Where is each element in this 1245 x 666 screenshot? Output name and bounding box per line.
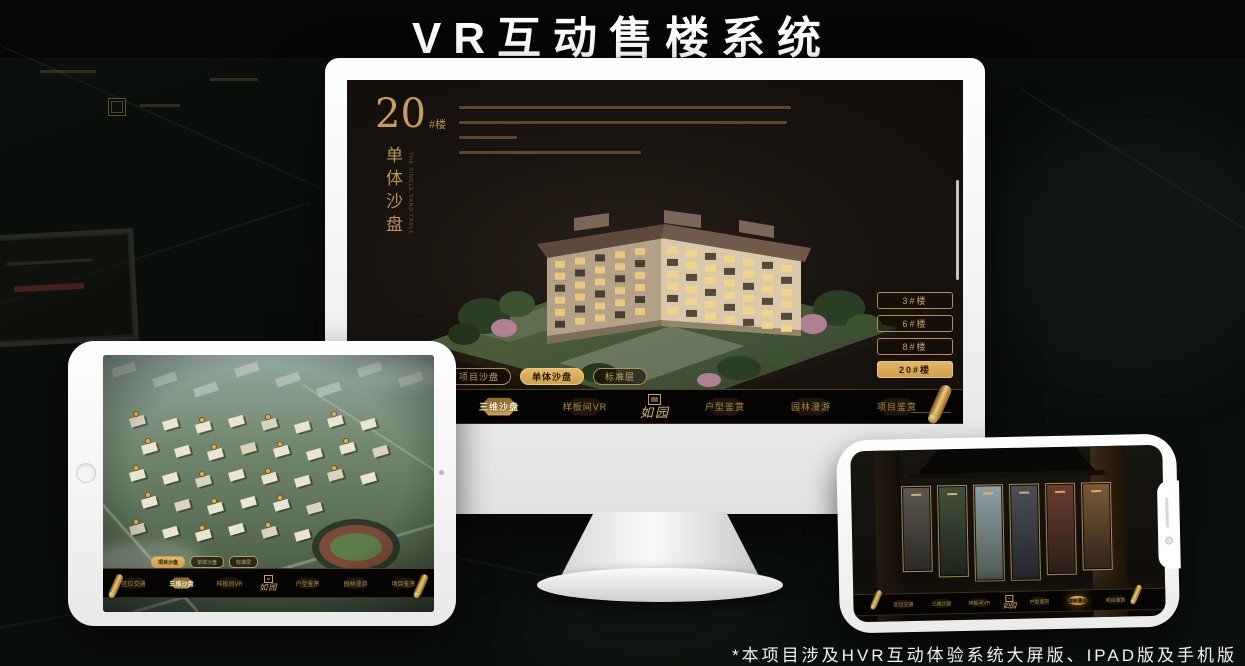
nav-item-3d-sandtable[interactable]: 三维沙盘 [164, 576, 200, 591]
logo-seal-icon [1005, 594, 1013, 601]
page-title: VR互动售楼系统 [0, 2, 1245, 66]
tab-single-sandtable[interactable]: 单体沙盘 [520, 368, 584, 385]
view-tabs: 项目沙盘 单体沙盘 标准层 [447, 368, 647, 385]
phone-notch [1157, 480, 1181, 568]
background-text-fragment [40, 70, 96, 73]
description-text-lines [459, 106, 791, 166]
cloud-wisp [354, 363, 434, 389]
nav-item-floorplan[interactable]: 户型鉴赏 [694, 396, 756, 418]
front-camera [1165, 537, 1173, 545]
building-button-20[interactable]: 20#楼 [877, 361, 953, 378]
building-selector: 3#楼 6#楼 8#楼 20#楼 [877, 292, 953, 384]
nav-item-model-room-vr[interactable]: 样板间VR [212, 576, 248, 591]
nav-item-floorplan[interactable]: 户型鉴赏 [290, 576, 326, 591]
tab-project-sandtable[interactable]: 项目沙盘 [151, 556, 185, 568]
nav-item-model-room-vr[interactable]: 样板间VR [554, 396, 616, 418]
scene-card[interactable] [901, 486, 933, 573]
nav-item-project-view[interactable]: 项目鉴赏 [1100, 593, 1130, 606]
block-number: 20 [375, 94, 426, 134]
scroll-icon[interactable] [869, 589, 884, 611]
scene-card-strip [901, 482, 1113, 583]
nav-item-floorplan[interactable]: 户型鉴赏 [1024, 595, 1054, 608]
nav-item-garden-roam[interactable]: 园林漫游 [338, 576, 374, 591]
background-plaque [0, 228, 139, 348]
front-camera [439, 470, 444, 475]
background-foliage [980, 120, 1245, 380]
tab-single-sandtable[interactable]: 单体沙盘 [190, 556, 224, 568]
phone-screen: 区位交通 三维沙盘 样板间VR 如园 户型鉴赏 园林漫游 项目鉴赏 [850, 445, 1166, 622]
logo-seal-icon [264, 575, 273, 583]
tab-standard-floor[interactable]: 标准层 [593, 368, 647, 385]
building-button-8[interactable]: 8#楼 [877, 338, 953, 355]
ipad-view-tabs: 项目沙盘 单体沙盘 标准层 [151, 556, 258, 568]
nav-item-3d-sandtable[interactable]: 三维沙盘 [468, 396, 530, 418]
nav-logo-ruyuan[interactable]: 如园 [640, 394, 670, 420]
scene-card[interactable] [1009, 483, 1041, 581]
logo-seal-icon [648, 394, 661, 405]
scroll-icon[interactable] [412, 572, 431, 599]
home-button[interactable] [76, 463, 96, 483]
monitor-base [537, 568, 783, 602]
building-button-6[interactable]: 6#楼 [877, 315, 953, 332]
block-number-suffix: #楼 [429, 116, 446, 132]
scroll-icon[interactable] [1129, 583, 1144, 605]
nav-item-3d-sandtable[interactable]: 三维沙盘 [926, 597, 956, 610]
scroll-icon[interactable] [925, 382, 955, 424]
building-button-3[interactable]: 3#楼 [877, 292, 953, 309]
tab-standard-floor[interactable]: 标准层 [229, 556, 258, 568]
scene-card[interactable] [1081, 482, 1113, 571]
nav-logo-ruyuan[interactable]: 如园 [260, 575, 278, 592]
nav-item-model-room-vr[interactable]: 样板间VR [964, 596, 994, 609]
block-subtitle: 单体沙盘 [380, 146, 405, 238]
ipad-screen: 项目沙盘 单体沙盘 标准层 区位交通 三维沙盘 样板间VR 如园 户型鉴赏 园林… [103, 355, 434, 612]
promo-poster: { "page": { "title": "VR互动售楼系统", "footno… [0, 0, 1245, 666]
nav-item-project-view[interactable]: 项目鉴赏 [866, 396, 928, 418]
speaker-slot [1165, 498, 1169, 528]
nav-item-location-traffic[interactable]: 区位交通 [888, 598, 918, 611]
background-text-fragment [210, 78, 258, 81]
scroll-icon[interactable] [107, 572, 126, 599]
ipad-navbar: 区位交通 三维沙盘 样板间VR 如园 户型鉴赏 园林漫游 项目鉴赏 [103, 568, 434, 598]
tab-project-sandtable[interactable]: 项目沙盘 [447, 368, 511, 385]
scene-card[interactable] [1045, 483, 1077, 576]
screen-scrollbar[interactable] [956, 180, 959, 280]
nav-logo-ruyuan[interactable]: 如园 [1002, 594, 1016, 609]
nav-item-garden-roam[interactable]: 园林漫游 [780, 396, 842, 418]
scene-card[interactable] [973, 484, 1005, 582]
background-gold-emblem [108, 98, 126, 116]
background-text-fragment [140, 104, 180, 107]
ipad-device: 项目沙盘 单体沙盘 标准层 区位交通 三维沙盘 样板间VR 如园 户型鉴赏 园林… [68, 341, 456, 626]
footnote-caption: *本项目涉及HVR互动体验系统大屏版、IPAD版及手机版 [732, 641, 1237, 666]
nav-item-garden-roam[interactable]: 园林漫游 [1062, 594, 1092, 607]
scene-card[interactable] [937, 485, 969, 578]
phone-device: 区位交通 三维沙盘 样板间VR 如园 户型鉴赏 园林漫游 项目鉴赏 [836, 433, 1180, 633]
